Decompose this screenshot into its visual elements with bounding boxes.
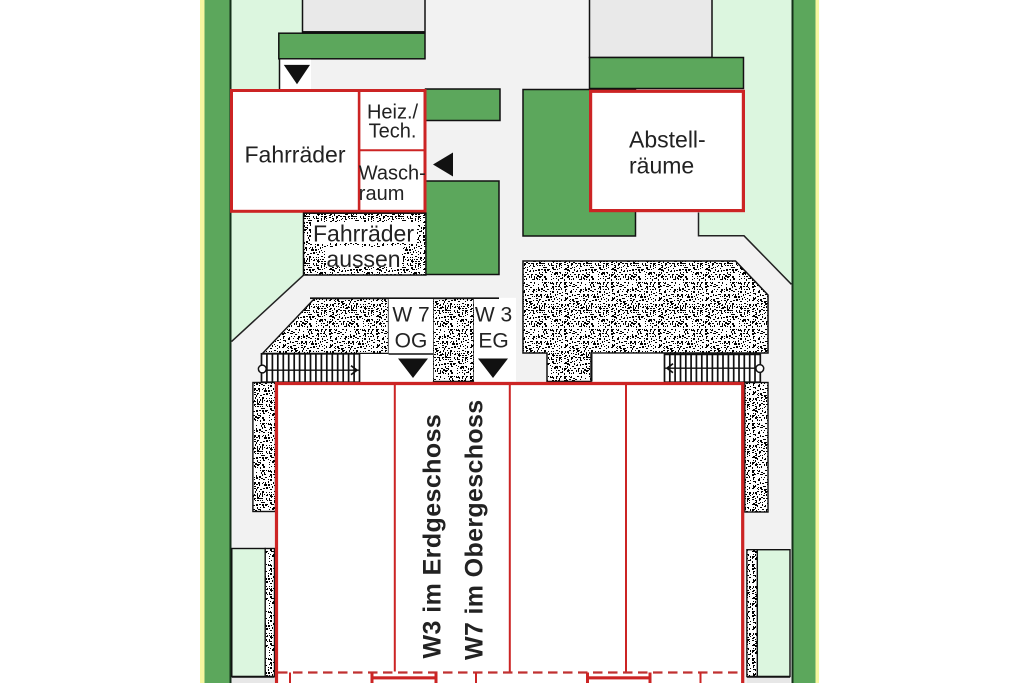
svg-text:Wasch-: Wasch- xyxy=(359,163,426,185)
svg-text:Tech.: Tech. xyxy=(369,121,417,143)
svg-text:Fahrräder: Fahrräder xyxy=(313,221,414,247)
svg-text:raum: raum xyxy=(359,183,405,205)
svg-text:EG: EG xyxy=(478,330,508,353)
svg-text:W 3: W 3 xyxy=(475,304,512,327)
svg-text:Abstell-: Abstell- xyxy=(629,127,706,153)
svg-text:aussen: aussen xyxy=(326,246,400,272)
svg-text:W7 im Obergeschoss: W7 im Obergeschoss xyxy=(461,399,489,660)
svg-text:W 7: W 7 xyxy=(392,304,429,327)
svg-text:W3 im Erdgeschoss: W3 im Erdgeschoss xyxy=(419,414,447,659)
svg-text:Fahrräder: Fahrräder xyxy=(245,142,346,168)
svg-text:räume: räume xyxy=(629,152,694,178)
svg-text:OG: OG xyxy=(395,330,428,353)
